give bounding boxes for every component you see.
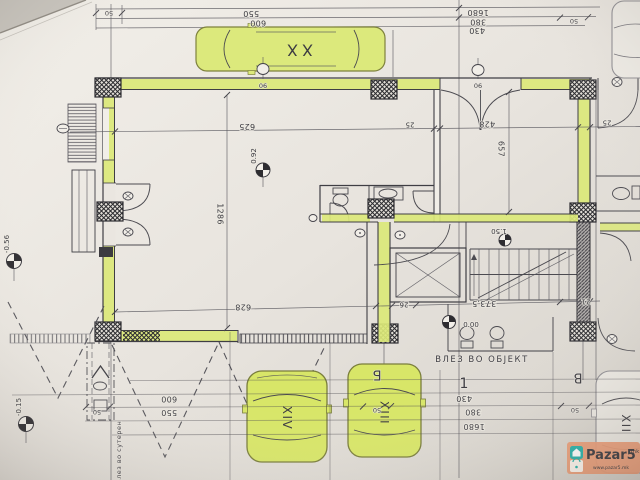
photo-vignette (0, 0, 640, 480)
floor-plan-photo: XX XIV XIII XII (0, 0, 640, 480)
floor-plan: XX XIV XIII XII (0, 0, 640, 480)
